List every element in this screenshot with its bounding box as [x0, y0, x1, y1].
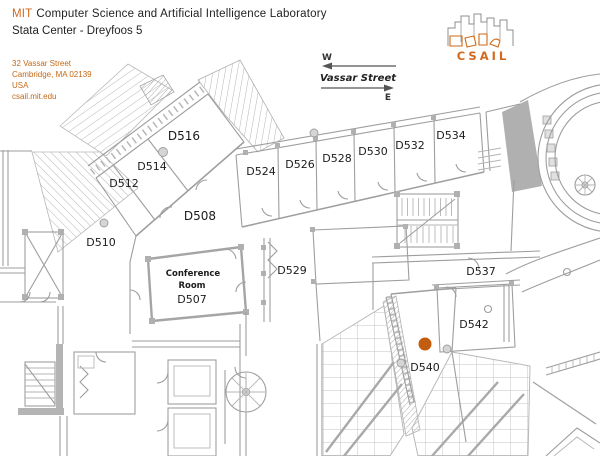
address-block: 32 Vassar Street Cambridge, MA 02139 USA… [12, 58, 92, 102]
address-line: csail.mit.edu [12, 91, 92, 102]
room-label-d542: D542 [459, 318, 488, 331]
stata-sketch-icon [448, 14, 513, 47]
room-label-d508: D508 [184, 209, 216, 223]
floor-subtitle: Stata Center - Dreyfoos 5 [12, 25, 327, 37]
room-label-d507: D507 [177, 293, 206, 306]
street-label: Vassar Street [320, 73, 397, 84]
spiral-stair-small-icon [575, 175, 595, 195]
location-marker-dot [419, 338, 432, 351]
room-label-d512: D512 [109, 177, 138, 190]
room-label-d534: D534 [436, 129, 465, 142]
lab-name: Computer Science and Artificial Intellig… [36, 8, 326, 20]
address-line: USA [12, 80, 92, 91]
room-label-d524: D524 [246, 165, 275, 178]
room-label-d526: D526 [285, 158, 314, 171]
header: MITComputer Science and Artificial Intel… [12, 8, 327, 37]
room-label-d540: D540 [410, 361, 439, 374]
compass-west-label: W [322, 53, 332, 63]
conference-label-line2: Room [178, 281, 205, 291]
address-line: 32 Vassar Street [12, 58, 92, 69]
compass: W E Vassar Street [320, 53, 397, 103]
room-label-d532: D532 [395, 139, 424, 152]
room-label-d528: D528 [322, 152, 351, 165]
csail-logo-text: CSAIL [457, 49, 509, 63]
lab-title: MITComputer Science and Artificial Intel… [12, 8, 327, 20]
address-line: Cambridge, MA 02139 [12, 69, 92, 80]
room-label-d510: D510 [86, 236, 115, 249]
room-label-d516: D516 [168, 129, 200, 143]
compass-east-label: E [385, 93, 391, 103]
room-label-d529: D529 [277, 264, 306, 277]
room-label-d530: D530 [358, 145, 387, 158]
east-arrow-icon [384, 85, 394, 92]
conference-label-line1: Conference [166, 269, 221, 279]
mit-label: MIT [12, 8, 32, 20]
csail-floor-map: MITComputer Science and Artificial Intel… [0, 0, 600, 456]
west-arrow-icon [322, 63, 332, 70]
csail-logo: CSAIL [448, 14, 513, 63]
room-label-d514: D514 [137, 160, 166, 173]
room-label-d537: D537 [466, 265, 495, 278]
